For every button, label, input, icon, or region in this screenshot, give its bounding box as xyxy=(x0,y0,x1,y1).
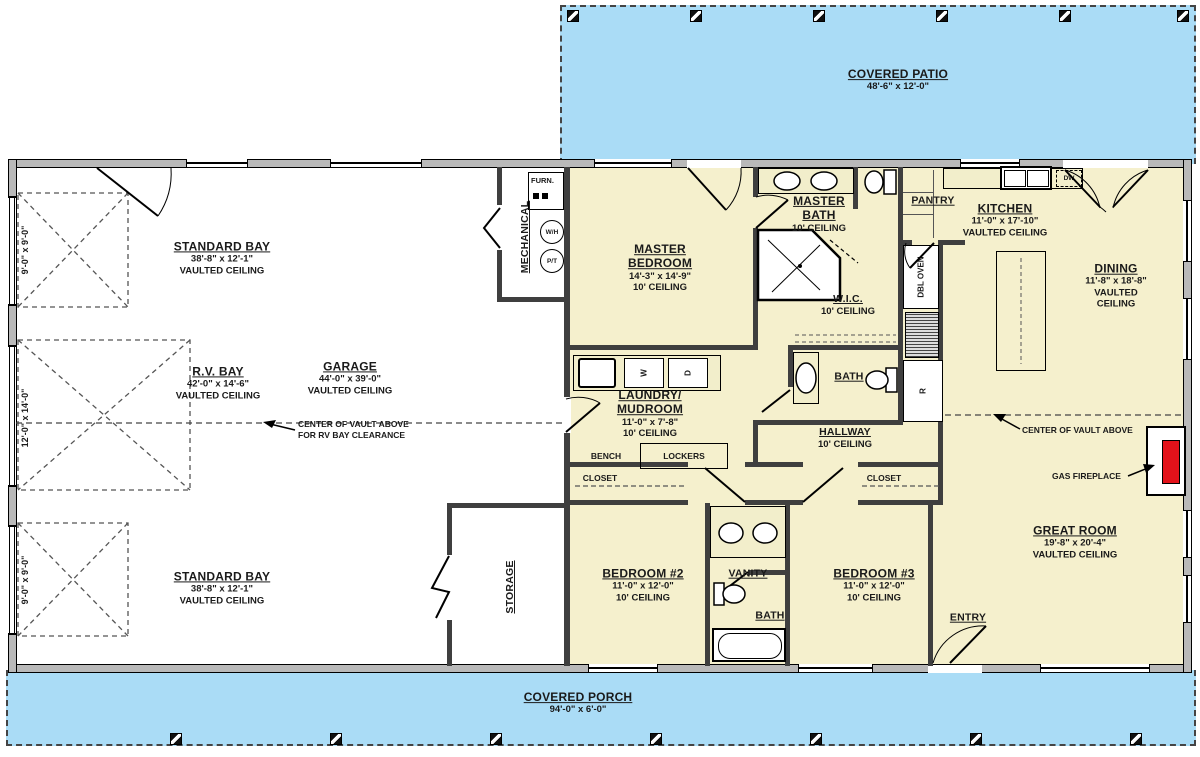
master-shower xyxy=(758,230,840,300)
bedroom3-door-leaf xyxy=(803,468,843,502)
pantry-door-leaf xyxy=(910,243,934,268)
lockers-label: LOCKERS xyxy=(663,451,705,461)
rv-bay-label: R.V. BAY 42'-0" x 14'-6" VAULTED CEILING xyxy=(176,364,261,401)
rv-approach-x xyxy=(18,340,190,490)
garage-vault-arrowhead xyxy=(263,420,276,428)
dining-label: DINING 11'-8" x 18'-8" VAULTED CEILING xyxy=(1074,262,1158,311)
laundry-door-leaf xyxy=(566,403,600,432)
bedroom2-door-leaf xyxy=(705,468,745,502)
standard-bay-bottom-label: STANDARD BAY 38'-8" x 12'-1" VAULTED CEI… xyxy=(174,569,270,606)
bay-approach-box xyxy=(18,523,128,636)
master-patio-door-swing xyxy=(726,168,741,210)
bath2-label: BATH xyxy=(755,610,784,623)
laundry-door-swing xyxy=(566,397,600,403)
great-room-label: GREAT ROOM 19'-8" x 20'-4" VAULTED CEILI… xyxy=(1033,523,1118,560)
mechanical-bifold-door xyxy=(484,208,500,248)
covered-patio-label: COVERED PATIO 48'-6" x 12'-0" xyxy=(848,67,948,93)
hallbath-door-leaf xyxy=(762,390,790,412)
garage-mandoor-swing xyxy=(158,168,171,216)
entry-label: ENTRY xyxy=(950,612,986,625)
bench-label: BENCH xyxy=(591,451,621,461)
bay-door-dim-top: 9'-0" x 9'-0" xyxy=(20,226,30,275)
master-bath-label: MASTER BATH 10' CEILING xyxy=(786,194,852,234)
bedroom3-label: BEDROOM #3 11'-0" x 12'-0" 10' CEILING xyxy=(833,566,914,603)
storage-label: STORAGE xyxy=(504,560,516,613)
greatroom-vault-leader xyxy=(1000,418,1020,429)
covered-porch-label: COVERED PORCH 94'-0" x 6'-0" xyxy=(524,690,633,716)
kitchen-label: KITCHEN 11'-0" x 17'-10" VAULTED CEILING xyxy=(963,201,1048,238)
master-patio-door-leaf xyxy=(688,168,726,210)
garage-vault-leader xyxy=(270,424,295,430)
bay-approach-x xyxy=(18,523,128,636)
pantry-door-swing xyxy=(905,243,910,268)
entry-door-leaf xyxy=(950,626,986,663)
storage-bifold-door xyxy=(432,556,449,618)
master-bedroom-label: MASTER BEDROOM 14'-3" x 14'-9" 10' CEILI… xyxy=(605,242,715,294)
bath2-toilet-bowl xyxy=(723,585,745,603)
bay-door-dim-bottom: 9'-0" x 9'-0" xyxy=(20,556,30,605)
closet-left-label: CLOSET xyxy=(583,473,617,483)
hallbath-sink xyxy=(796,363,816,393)
fireplace-arrowhead xyxy=(1143,464,1155,473)
vanity-sink xyxy=(753,523,777,543)
garage-mandoor-leaf xyxy=(97,168,158,216)
greatroom-vault-note: CENTER OF VAULT ABOVE xyxy=(1022,425,1133,436)
dining-french-door-leaf xyxy=(1113,170,1148,207)
mechanical-label: MECHANICAL xyxy=(519,201,531,274)
masterbath-door-swing xyxy=(756,195,788,200)
masterbath-toilet-bowl xyxy=(865,171,883,193)
hallway-label: HALLWAY 10' CEILING xyxy=(818,426,872,450)
hallbath-toilet-bowl xyxy=(866,371,888,389)
wic-shelving xyxy=(795,335,896,342)
masterbath-sink xyxy=(811,172,837,190)
masterbath-toilet-tank xyxy=(884,170,896,194)
gas-fireplace-note: GAS FIREPLACE xyxy=(1052,471,1121,482)
vanity-sink xyxy=(719,523,743,543)
vanity-label: VANITY xyxy=(729,568,768,581)
pantry-label: PANTRY xyxy=(911,195,954,208)
dining-french-door-swings xyxy=(1065,170,1148,208)
bedroom2-label: BEDROOM #2 11'-0" x 12'-0" 10' CEILING xyxy=(602,566,683,603)
rv-door-dim: 12'-0" x 14'-0" xyxy=(20,389,30,448)
laundry-label: LAUNDRY/ MUDROOM 11'-0" x 7'-8" 10' CEIL… xyxy=(600,388,700,440)
floor-plan: FURN. W/H P/T DW DBL OVEN R W D xyxy=(0,0,1200,757)
dining-french-door-leaf xyxy=(1065,170,1100,207)
hall-bath-label: BATH xyxy=(834,371,863,384)
bay-approach-box xyxy=(18,193,128,307)
entry-door-swing xyxy=(933,626,986,663)
garage-label: GARAGE 44'-0" x 39'-0" VAULTED CEILING xyxy=(308,359,393,396)
dining-french-door-swing xyxy=(1100,207,1106,212)
masterbath-door-leaf xyxy=(756,200,788,228)
closet-right-label: CLOSET xyxy=(867,473,901,483)
bay-approach-x xyxy=(18,193,128,307)
standard-bay-top-label: STANDARD BAY 38'-8" x 12'-1" VAULTED CEI… xyxy=(174,239,270,276)
garage-vault-note: CENTER OF VAULT ABOVE FOR RV BAY CLEARAN… xyxy=(298,419,409,440)
masterbath-sink xyxy=(774,172,800,190)
wic-label: W.I.C. 10' CEILING xyxy=(821,293,875,317)
